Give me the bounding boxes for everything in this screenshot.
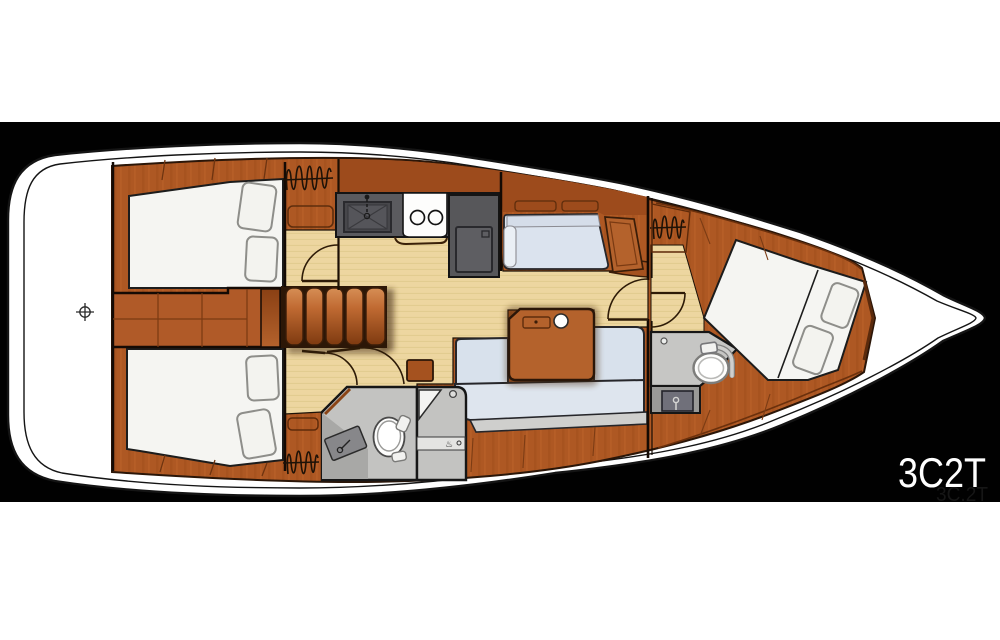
svg-text:♨: ♨ xyxy=(445,439,453,449)
svg-text:3C2T: 3C2T xyxy=(898,449,986,496)
